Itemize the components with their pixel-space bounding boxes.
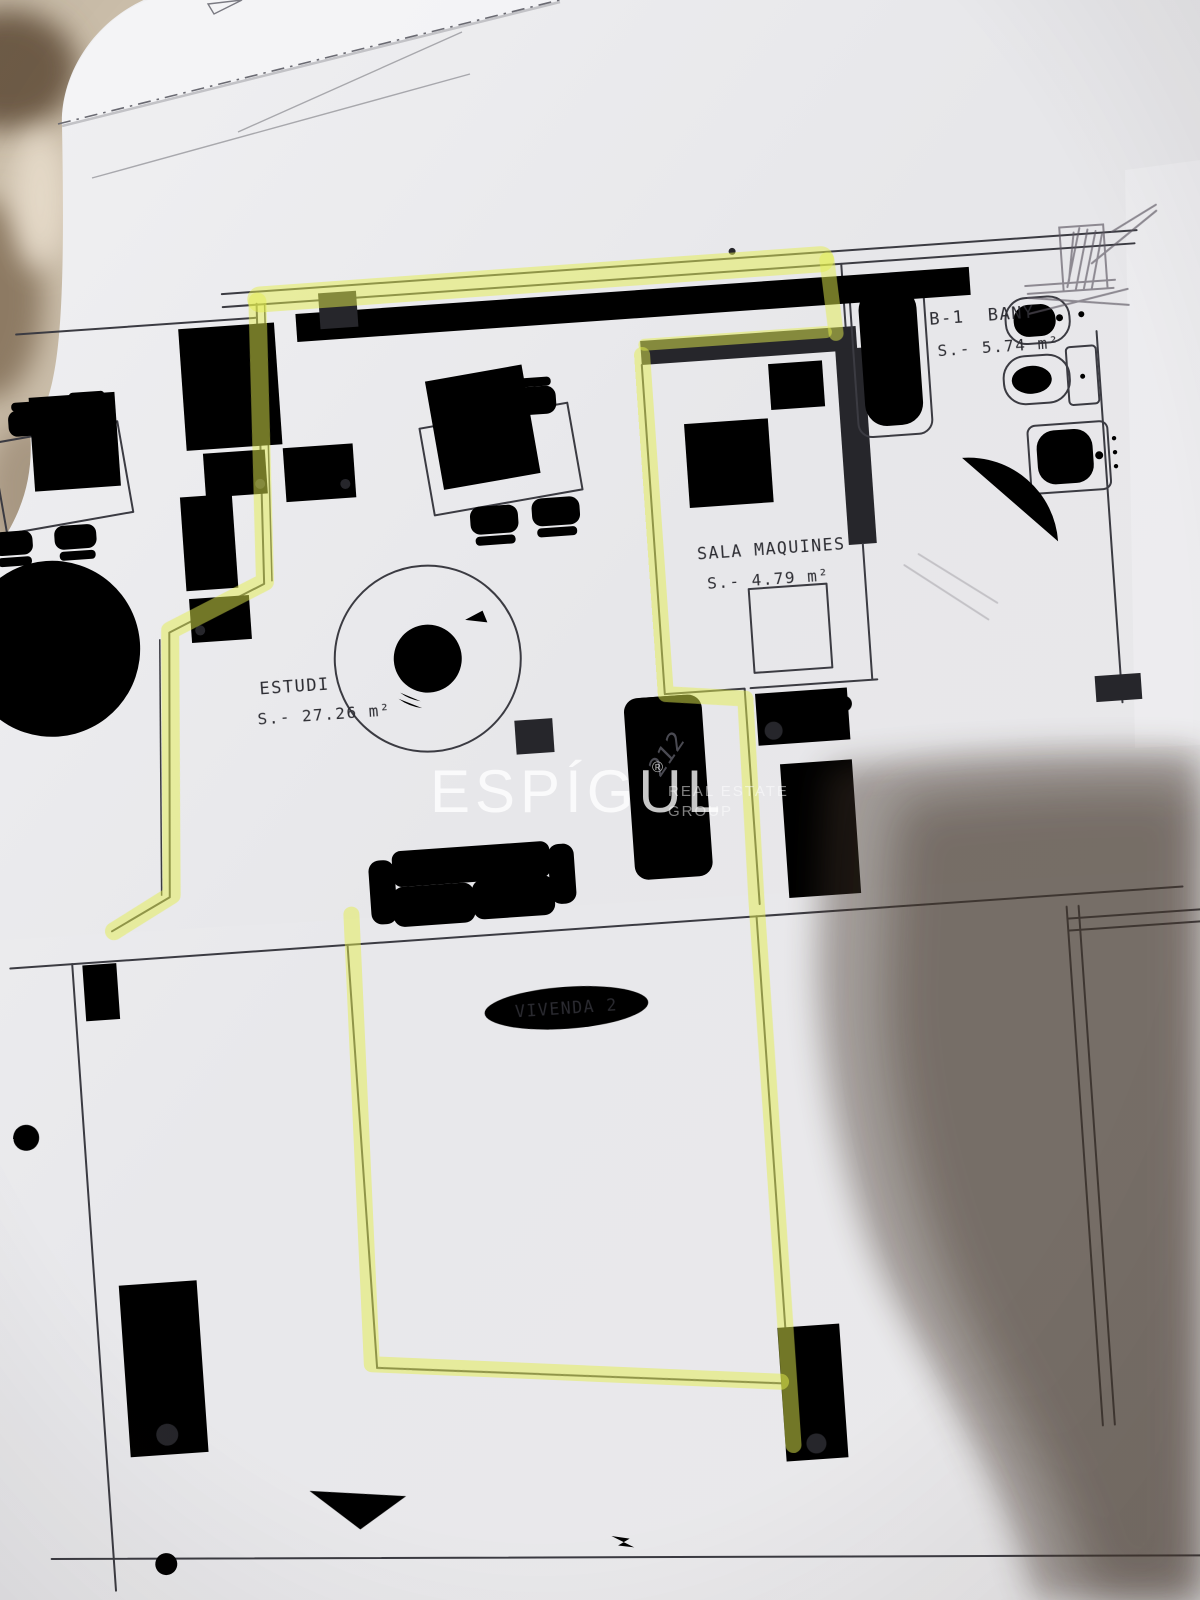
photo-vignette (0, 0, 1200, 1600)
photographed-floor-plan: 212 (0, 0, 1200, 1600)
